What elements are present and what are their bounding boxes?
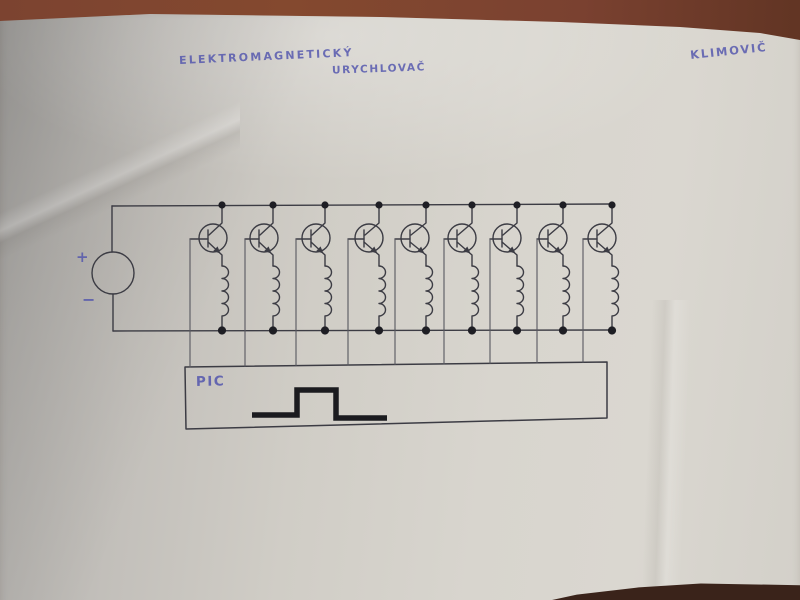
junction-dot bbox=[513, 201, 520, 208]
transistor-circle bbox=[588, 224, 616, 252]
driver-stage-9 bbox=[583, 201, 619, 362]
paper-sheet: ELEKTROMAGNETICKÝ URYCHLOVAČ KLIMOVIČ +−… bbox=[0, 0, 800, 600]
junction-dot bbox=[468, 201, 475, 208]
transistor-circle bbox=[448, 224, 476, 252]
transistor-circle bbox=[493, 224, 521, 252]
coil bbox=[517, 266, 524, 331]
junction-dot bbox=[375, 326, 383, 334]
driver-stage-1 bbox=[190, 201, 229, 367]
transistor-circle bbox=[250, 224, 278, 252]
pic-label: PIC bbox=[196, 373, 226, 390]
junction-dot bbox=[559, 326, 567, 334]
junction-dot bbox=[218, 201, 225, 208]
junction-dot bbox=[269, 201, 276, 208]
driver-stage-6 bbox=[444, 201, 479, 364]
pic-controller: PIC bbox=[185, 362, 607, 429]
driver-stage-7 bbox=[490, 201, 524, 363]
driver-stage-3 bbox=[296, 201, 332, 365]
transistor-circle bbox=[539, 224, 567, 252]
transistor-circle bbox=[199, 224, 227, 252]
junction-dot bbox=[375, 201, 382, 208]
junction-dot bbox=[559, 201, 566, 208]
coil bbox=[222, 266, 229, 331]
circuit-schematic: +−PIC bbox=[0, 0, 800, 600]
coil bbox=[273, 266, 280, 331]
source-circle bbox=[92, 252, 134, 294]
coil bbox=[379, 266, 386, 331]
coil bbox=[612, 266, 619, 331]
pic-box bbox=[185, 362, 607, 429]
junction-dot bbox=[468, 326, 476, 334]
junction-dot bbox=[422, 201, 429, 208]
power-source: +− bbox=[76, 206, 134, 331]
junction-dot bbox=[269, 326, 277, 334]
junction-dot bbox=[513, 326, 521, 334]
junction-dot bbox=[321, 326, 329, 334]
transistor-circle bbox=[401, 224, 429, 252]
coil bbox=[325, 266, 332, 331]
junction-dot bbox=[321, 201, 328, 208]
source-plus-label: + bbox=[76, 248, 89, 266]
junction-dot bbox=[422, 326, 430, 334]
junction-dot bbox=[608, 326, 616, 334]
driver-stage-4 bbox=[348, 201, 386, 365]
coil bbox=[426, 266, 433, 331]
transistor-circle bbox=[355, 224, 383, 252]
source-minus-label: − bbox=[82, 290, 95, 309]
pulse-waveform bbox=[252, 390, 387, 418]
driver-stage-8 bbox=[537, 201, 570, 362]
coil bbox=[563, 266, 570, 331]
transistor-circle bbox=[302, 224, 330, 252]
coil bbox=[472, 266, 479, 331]
junction-dot bbox=[218, 326, 226, 334]
photo-scene: ELEKTROMAGNETICKÝ URYCHLOVAČ KLIMOVIČ +−… bbox=[0, 0, 800, 600]
driver-stage-2 bbox=[245, 201, 280, 366]
junction-dot bbox=[608, 201, 615, 208]
driver-stage-5 bbox=[395, 201, 433, 364]
